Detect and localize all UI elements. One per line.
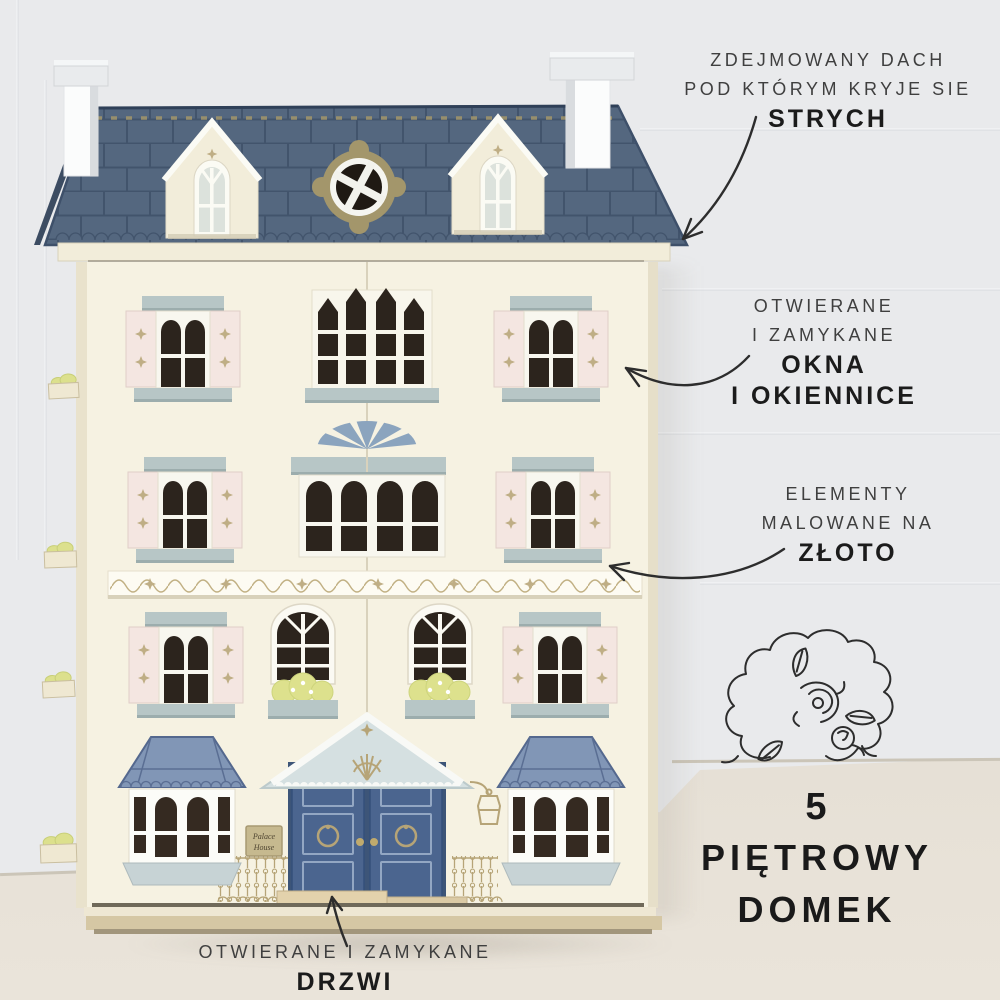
callout-roof-line: ZDEJMOWANY DACH — [660, 46, 996, 75]
roof-eave — [58, 243, 670, 261]
house-base — [84, 903, 662, 934]
floors-word: PIĘTROWY — [662, 832, 972, 884]
gold-frieze — [108, 571, 642, 599]
callout-door-emphasis: DRZWI — [168, 967, 522, 998]
callout-roof: ZDEJMOWANY DACH POD KTÓRYM KRYJE SIE STR… — [660, 46, 996, 135]
shuttered-window — [129, 612, 243, 718]
gothic-window — [305, 288, 439, 403]
name-plaque: Palace House — [246, 826, 282, 856]
callout-windows: OTWIERANE I ZAMYKANE OKNA I OKIENNICE — [690, 292, 958, 412]
center-window — [291, 457, 446, 557]
callout-gold-line: MALOWANE NA — [712, 509, 984, 538]
callout-door: OTWIERANE I ZAMYKANE DRZWI — [168, 938, 522, 998]
shuttered-window — [128, 457, 242, 563]
callout-roof-line: POD KTÓRYM KRYJE SIE — [660, 75, 996, 104]
bay-window-left — [119, 737, 245, 885]
side-flower-box — [44, 542, 77, 568]
bay-window-right — [498, 737, 624, 885]
shuttered-window — [494, 296, 608, 402]
floors-word: DOMEK — [662, 884, 972, 936]
shuttered-window — [126, 296, 240, 402]
shuttered-window — [503, 612, 617, 718]
floors-number: 5 — [662, 782, 972, 832]
side-flower-box — [40, 833, 77, 863]
gold-fence-right — [452, 856, 502, 902]
arched-window — [408, 604, 472, 684]
svg-text:House: House — [253, 843, 275, 852]
callout-windows-emphasis: OKNA — [690, 350, 958, 381]
side-flower-box — [48, 373, 79, 399]
side-flower-box — [42, 671, 75, 698]
callout-gold: ELEMENTY MALOWANE NA ZŁOTO — [712, 480, 984, 569]
callout-gold-emphasis: ZŁOTO — [712, 538, 984, 569]
arched-window — [271, 604, 335, 684]
callout-windows-line: I ZAMYKANE — [690, 321, 958, 350]
callout-floors: 5 PIĘTROWY DOMEK — [662, 782, 972, 936]
callout-roof-emphasis: STRYCH — [660, 104, 996, 135]
door-knob — [370, 838, 378, 846]
door-knob — [356, 838, 364, 846]
callout-door-line: OTWIERANE I ZAMYKANE — [168, 938, 522, 967]
callout-windows-line: OTWIERANE — [690, 292, 958, 321]
svg-text:Palace: Palace — [252, 832, 276, 841]
scene: Palace House — [0, 0, 1000, 1000]
shuttered-window — [496, 457, 610, 563]
callout-windows-emphasis: I OKIENNICE — [690, 381, 958, 412]
callout-gold-line: ELEMENTY — [712, 480, 984, 509]
